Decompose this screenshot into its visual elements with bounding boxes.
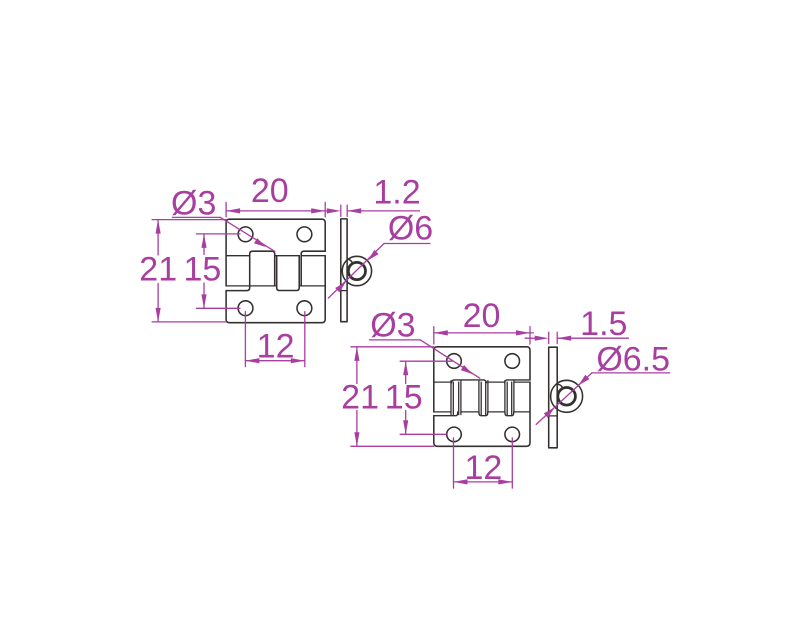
svg-text:20: 20 <box>463 297 501 335</box>
svg-text:15: 15 <box>385 379 423 417</box>
svg-text:21: 21 <box>139 251 177 289</box>
svg-text:21: 21 <box>341 379 379 417</box>
svg-text:Ø3: Ø3 <box>171 184 216 222</box>
svg-text:Ø3: Ø3 <box>370 306 415 344</box>
svg-text:20: 20 <box>251 172 289 210</box>
svg-text:1.2: 1.2 <box>373 174 420 212</box>
svg-text:15: 15 <box>183 251 221 289</box>
svg-text:12: 12 <box>257 327 295 365</box>
svg-text:1.5: 1.5 <box>580 305 627 343</box>
svg-text:12: 12 <box>464 449 502 487</box>
svg-text:Ø6: Ø6 <box>388 210 433 248</box>
